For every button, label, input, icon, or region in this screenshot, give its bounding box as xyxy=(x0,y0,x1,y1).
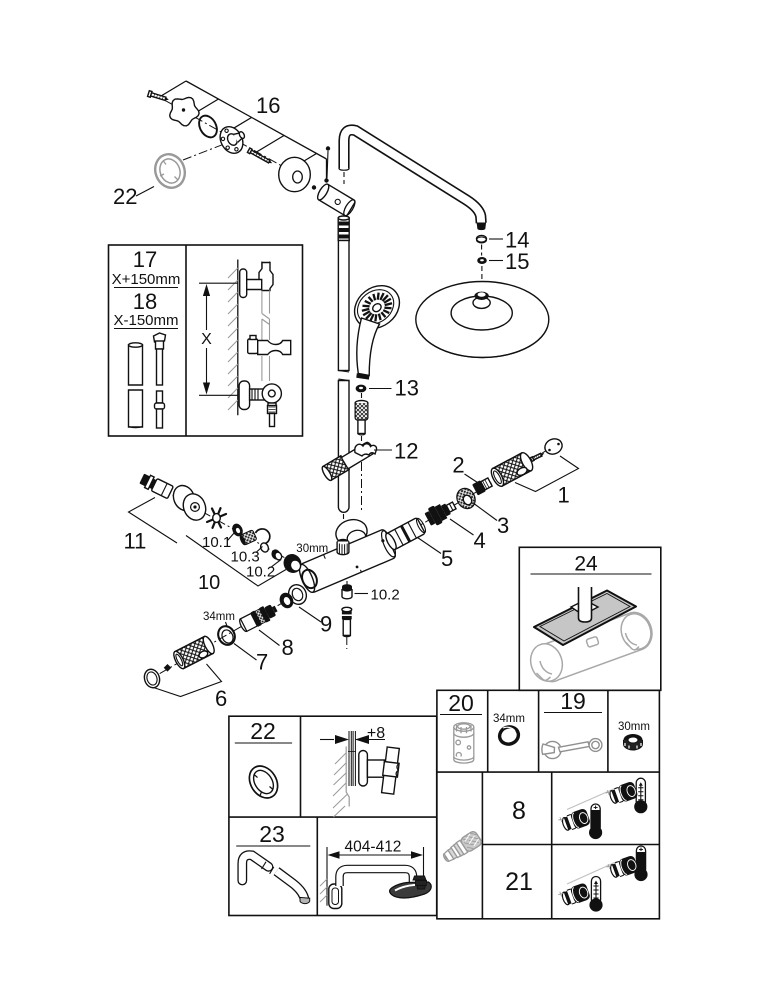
svg-text:8: 8 xyxy=(512,797,526,825)
svg-text:17: 17 xyxy=(133,247,157,272)
svg-text:7: 7 xyxy=(256,650,268,675)
svg-text:9: 9 xyxy=(320,612,332,637)
svg-text:22: 22 xyxy=(250,718,276,744)
svg-text:21: 21 xyxy=(505,868,533,896)
svg-text:8: 8 xyxy=(282,635,294,660)
svg-text:30mm: 30mm xyxy=(296,543,328,555)
svg-text:19: 19 xyxy=(560,688,586,714)
svg-text:11: 11 xyxy=(124,529,147,554)
svg-text:10.2: 10.2 xyxy=(371,587,400,604)
svg-text:X: X xyxy=(201,331,212,348)
svg-text:X-150mm: X-150mm xyxy=(113,312,178,329)
svg-text:34mm: 34mm xyxy=(203,611,235,623)
svg-text:6: 6 xyxy=(215,686,227,711)
svg-text:18: 18 xyxy=(133,289,157,314)
svg-text:22: 22 xyxy=(113,184,137,209)
svg-text:24: 24 xyxy=(574,553,598,576)
svg-text:13: 13 xyxy=(395,376,419,401)
svg-text:X+150mm: X+150mm xyxy=(112,271,181,288)
svg-text:5: 5 xyxy=(441,546,453,571)
svg-text:23: 23 xyxy=(259,821,285,847)
svg-text:20: 20 xyxy=(448,690,474,716)
svg-text:1: 1 xyxy=(558,483,570,508)
svg-text:12: 12 xyxy=(394,439,418,464)
svg-text:404-412: 404-412 xyxy=(345,839,402,856)
svg-text:4: 4 xyxy=(474,528,486,553)
svg-text:3: 3 xyxy=(497,513,509,538)
svg-text:34mm: 34mm xyxy=(493,713,525,725)
svg-text:10: 10 xyxy=(198,572,220,594)
svg-text:10.1: 10.1 xyxy=(202,534,231,551)
svg-text:15: 15 xyxy=(505,249,529,274)
svg-text:16: 16 xyxy=(256,93,280,118)
svg-text:2: 2 xyxy=(452,453,464,478)
svg-text:30mm: 30mm xyxy=(618,721,650,733)
